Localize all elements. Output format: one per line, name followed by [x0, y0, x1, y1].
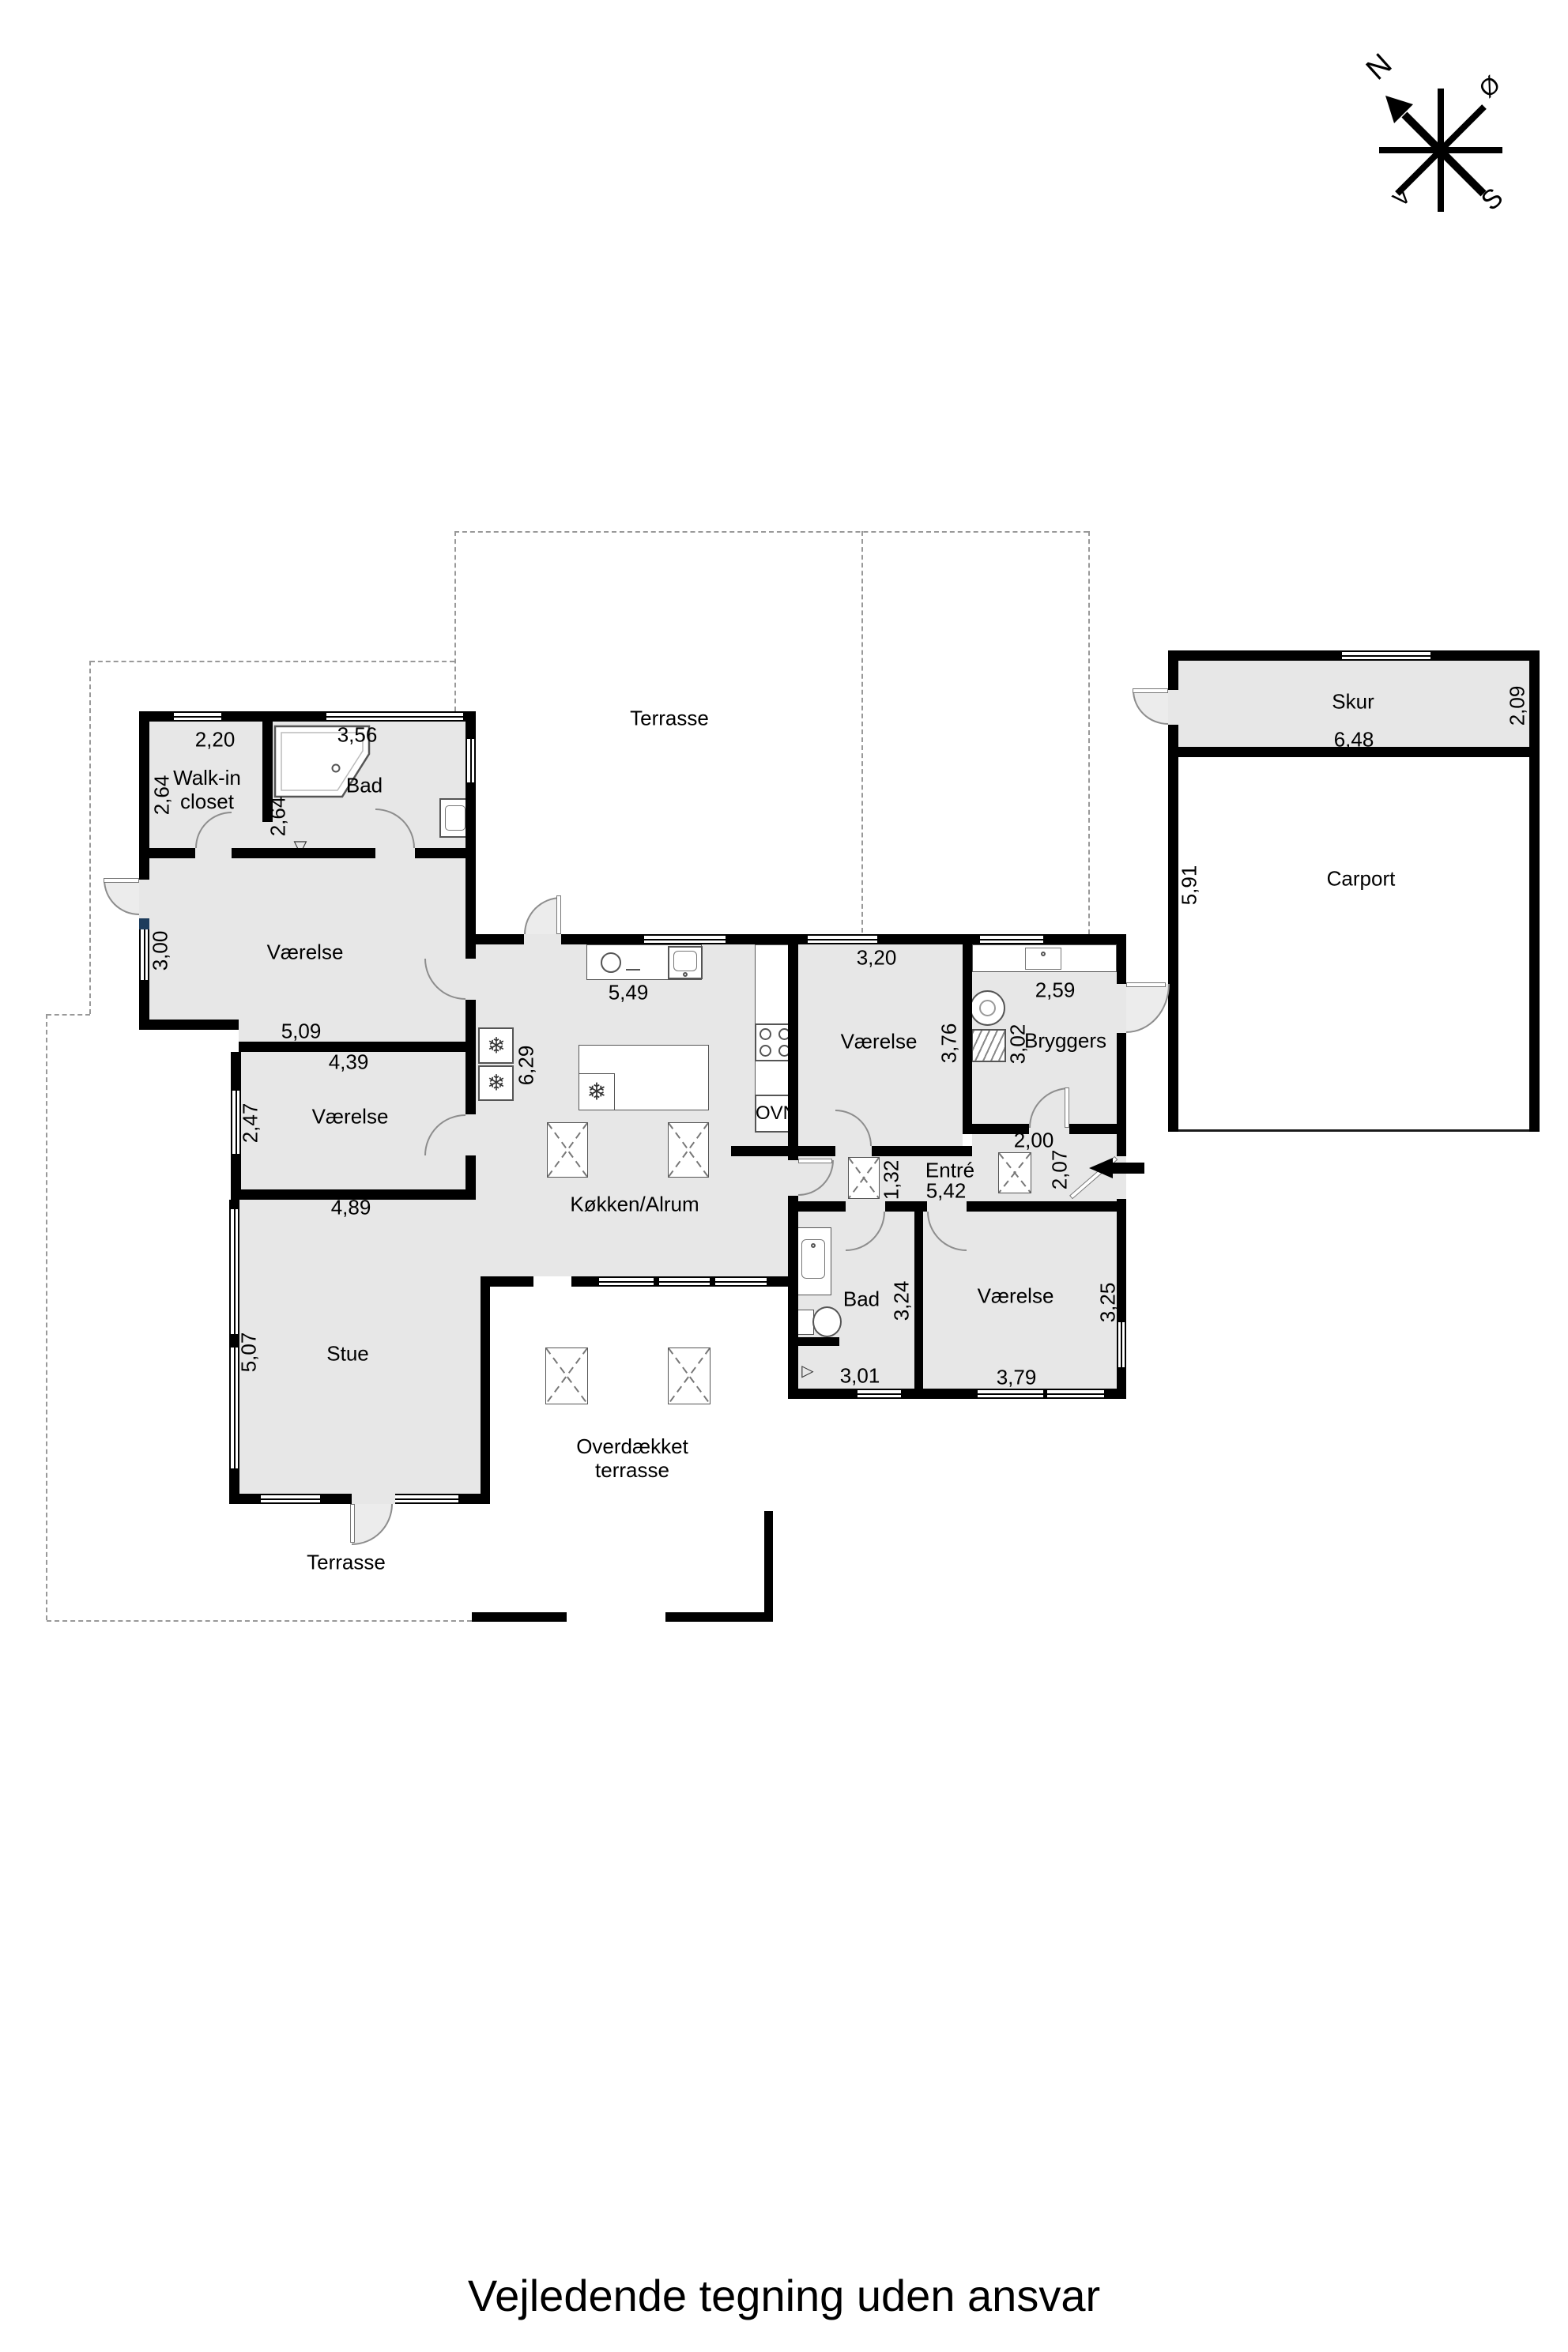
wall-segment — [877, 934, 980, 944]
door-arc-exterior — [524, 897, 561, 934]
burner-icon — [759, 1028, 771, 1040]
wall-segment — [1104, 1389, 1126, 1399]
wall-segment — [764, 1511, 773, 1622]
skylight — [848, 1157, 880, 1199]
dim-label: 2,47 — [239, 1103, 263, 1144]
skylight — [545, 1347, 588, 1404]
wall-segment — [229, 1494, 261, 1504]
window — [1342, 650, 1430, 661]
terrace-boundary-dashed — [454, 531, 456, 711]
wall-segment — [901, 1389, 978, 1399]
floor-plan: ▽ OVN ❄ ❄ ❄ ▷ — [0, 0, 1568, 2352]
wall-segment — [229, 1200, 239, 1209]
entry-arrow-shaft — [1111, 1163, 1144, 1174]
door-opening — [195, 848, 232, 858]
door-leaf — [798, 1159, 832, 1163]
wall-segment — [798, 1146, 835, 1156]
door-opening — [846, 1201, 885, 1212]
room-label-terrasse-north: Terrasse — [630, 707, 709, 731]
wall-segment — [726, 934, 797, 944]
window — [980, 934, 1043, 944]
window — [229, 1209, 239, 1334]
wall-segment — [797, 1337, 839, 1346]
window — [1047, 1389, 1104, 1399]
terrace-boundary-dashed — [89, 661, 91, 1014]
wall-segment — [476, 934, 524, 944]
terrace-boundary-dashed — [861, 531, 863, 940]
wall-segment — [465, 1000, 476, 1114]
door-arc-exterior — [1133, 690, 1168, 725]
dim-label: 2,64 — [150, 775, 175, 816]
dim-label: 2,09 — [1506, 686, 1530, 726]
dim-label: 6,48 — [1334, 728, 1374, 752]
terrace-boundary-dashed — [90, 661, 454, 662]
terrace-boundary-dashed — [1088, 531, 1090, 934]
room-label-vaerelse-nw: Værelse — [267, 940, 344, 965]
compass-e: Ø — [1475, 71, 1506, 103]
wall-segment — [872, 1146, 972, 1156]
terrace-boundary-dashed — [47, 1014, 90, 1016]
door-leaf — [104, 878, 139, 883]
room-label-vaerelse-c: Værelse — [841, 1030, 918, 1054]
wall-segment — [788, 1389, 857, 1399]
dim-label: 5,09 — [281, 1020, 322, 1044]
window — [395, 1494, 458, 1504]
terrace-boundary-dashed — [454, 531, 1088, 533]
room-label-overdaekket: Overdækket terrasse — [565, 1435, 699, 1483]
wall-segment — [1117, 1033, 1126, 1156]
door-opening — [352, 1494, 395, 1504]
door-opening — [1117, 984, 1126, 1033]
window — [808, 934, 877, 944]
skylight — [668, 1347, 710, 1404]
wall-segment — [788, 1201, 846, 1212]
door-opening — [465, 959, 476, 1000]
navy-sill — [139, 918, 149, 929]
skylight — [998, 1152, 1031, 1193]
dim-label: 3,00 — [149, 931, 173, 971]
dim-label: 5,07 — [237, 1332, 262, 1373]
window — [326, 711, 419, 722]
door-opening — [788, 1160, 798, 1196]
dim-label: 2,07 — [1048, 1150, 1072, 1190]
room-label-vaerelse-se: Værelse — [978, 1284, 1054, 1309]
door-opening — [465, 1114, 476, 1155]
wall-segment — [1168, 725, 1178, 1132]
kitchen-sink-basin — [673, 951, 697, 971]
disclaimer-text: Vejledende tegning uden ansvar — [0, 2270, 1568, 2321]
window — [644, 934, 726, 944]
door-arc-exterior — [1126, 984, 1170, 1033]
carport-open-edge — [1178, 1129, 1529, 1132]
dim-label: 5,91 — [1178, 865, 1202, 906]
wall-segment — [885, 1201, 927, 1212]
door-opening — [375, 848, 415, 858]
dim-label: 3,02 — [1006, 1024, 1031, 1065]
window — [174, 711, 221, 722]
wall-segment — [665, 1612, 773, 1622]
dim-label: 3,76 — [937, 1023, 962, 1064]
window — [465, 739, 476, 782]
terrace-boundary-dashed — [47, 1620, 472, 1622]
dim-label: 3,25 — [1096, 1283, 1121, 1323]
dishwasher-icon-line — [626, 969, 640, 971]
bryggers-tap-icon — [1041, 952, 1046, 956]
door-leaf — [350, 1504, 355, 1543]
dim-label: 2,20 — [195, 728, 236, 752]
wall-segment — [139, 1020, 239, 1030]
washing-machine-drum — [979, 1000, 996, 1016]
dim-label: 2,64 — [266, 797, 291, 837]
window-mullion — [654, 1276, 659, 1287]
room-label-terrasse-south: Terrasse — [307, 1551, 386, 1575]
wall-segment — [788, 1196, 798, 1399]
room-label-koekken: Køkken/Alrum — [570, 1193, 699, 1217]
room-label-bad-north: Bad — [346, 774, 383, 798]
dim-label: 5,49 — [609, 981, 649, 1005]
dim-label: 3,79 — [997, 1366, 1037, 1390]
skylight — [547, 1122, 588, 1178]
window — [1117, 1322, 1126, 1367]
toilet-tank-icon — [797, 1310, 814, 1335]
wall-segment — [914, 1212, 923, 1389]
door-leaf — [1126, 982, 1166, 987]
compass-rose: N Ø V S — [1363, 43, 1521, 213]
room-label-vaerelse-w: Værelse — [312, 1105, 389, 1129]
window-mullion — [710, 1276, 715, 1287]
wall-segment — [232, 848, 375, 858]
dim-label: 6,29 — [514, 1046, 539, 1086]
wall-segment — [139, 848, 195, 858]
wall-segment — [1043, 934, 1126, 944]
toilet-bowl-icon — [812, 1306, 842, 1337]
sink-basin-icon — [445, 805, 465, 831]
room-fill-vaerelse-nw — [149, 858, 465, 1020]
freezer-glyph: ❄ — [586, 1079, 606, 1106]
door-opening — [139, 880, 149, 918]
window — [261, 1494, 320, 1504]
wall-segment — [1117, 934, 1126, 984]
door-arc-exterior — [104, 880, 139, 915]
floor-drain-icon: ▷ — [801, 1361, 813, 1380]
room-label-bryggers: Bryggers — [1024, 1029, 1106, 1053]
tap-icon — [811, 1243, 816, 1248]
window — [417, 711, 463, 722]
wall-segment — [320, 1494, 352, 1504]
door-opening — [524, 934, 561, 944]
burner-icon — [759, 1045, 771, 1057]
door-arc-exterior — [352, 1504, 393, 1545]
wall-segment — [1168, 661, 1178, 690]
window — [599, 1276, 767, 1287]
dim-label: 4,89 — [331, 1196, 371, 1220]
dim-label: 3,01 — [840, 1364, 880, 1389]
wall-segment — [481, 1276, 490, 1504]
window — [978, 1389, 1043, 1399]
dim-label: 5,42 — [926, 1179, 967, 1204]
window — [857, 1389, 901, 1399]
wall-segment — [571, 1276, 599, 1287]
dryer-icon — [971, 1029, 1006, 1062]
dim-label: 2,59 — [1035, 978, 1076, 1003]
skylight — [668, 1122, 709, 1178]
wall-segment — [1069, 1124, 1117, 1134]
freezer-glyph: ❄ — [487, 1070, 505, 1096]
room-label-carport: Carport — [1327, 867, 1396, 891]
wall-segment — [797, 934, 808, 944]
wall-segment — [731, 1146, 798, 1156]
compass-v: V — [1388, 183, 1415, 212]
dim-label: 1,32 — [880, 1160, 904, 1200]
door-leaf — [1133, 688, 1168, 693]
dim-label: 4,39 — [329, 1050, 369, 1075]
kitchen-tap-icon — [683, 972, 688, 977]
door-leaf — [1065, 1087, 1069, 1128]
wall-segment — [967, 1201, 1126, 1212]
wall-segment — [1529, 661, 1540, 1132]
wall-segment — [561, 934, 644, 944]
dim-label: 3,24 — [890, 1281, 914, 1321]
freezer-glyph: ❄ — [487, 1033, 505, 1059]
room-label-skur: Skur — [1332, 690, 1374, 714]
door-opening — [1168, 690, 1178, 725]
wall-segment — [231, 1052, 241, 1091]
dim-label: 3,56 — [337, 723, 378, 748]
terrace-boundary-dashed — [46, 1014, 47, 1620]
entry-arrow-icon — [1089, 1158, 1113, 1178]
door-leaf — [556, 895, 561, 934]
wall-segment — [472, 1612, 567, 1622]
room-label-bad-south: Bad — [843, 1287, 880, 1312]
door-opening — [835, 1146, 872, 1156]
wall-segment — [481, 1276, 533, 1287]
compass-n: N — [1363, 47, 1398, 87]
wall-segment — [963, 934, 972, 1134]
room-label-stue: Stue — [326, 1342, 369, 1366]
room-fill-vaerelse-nw2 — [239, 1020, 465, 1042]
wall-segment — [788, 944, 798, 1160]
dim-label: 3,20 — [857, 946, 897, 971]
dishwasher-icon — [601, 952, 621, 973]
